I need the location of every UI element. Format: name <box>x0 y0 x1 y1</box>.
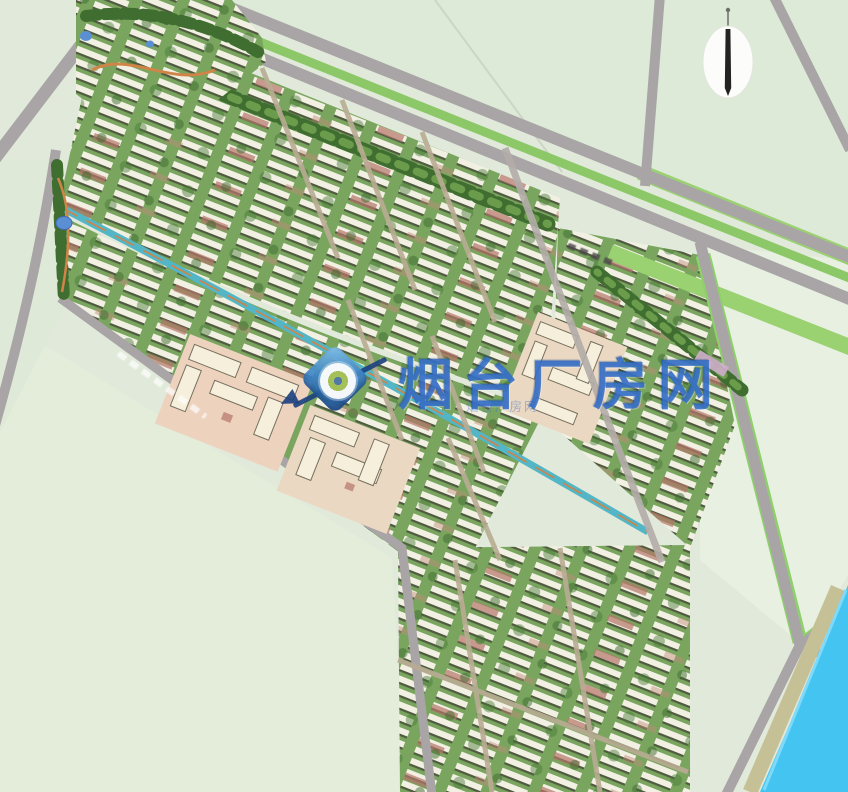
pond-icon <box>146 41 154 48</box>
master-plan-graphic <box>0 0 848 792</box>
site-plan-map: 烟台厂房网 烟台厂房网 <box>0 0 848 792</box>
pond-icon <box>80 31 92 41</box>
pond-icon <box>56 217 72 230</box>
